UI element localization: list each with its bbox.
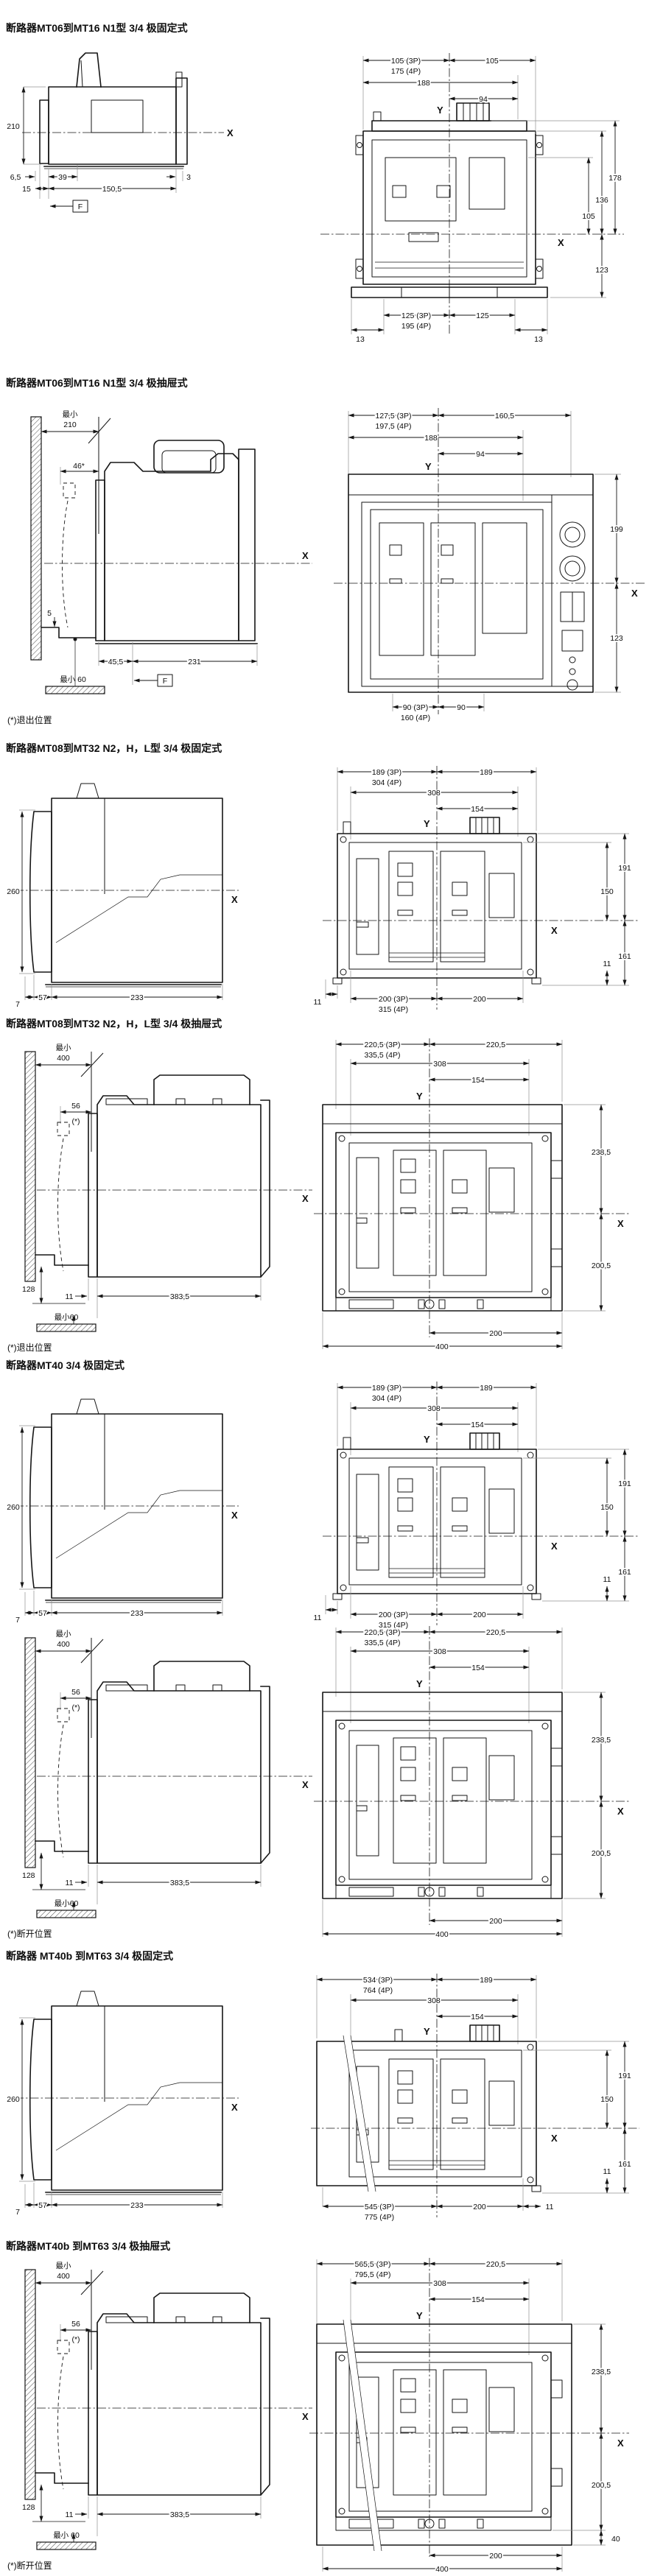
dimensions: 210 6,5 39 3 15 150,5 F — [7, 87, 191, 212]
dim-label: 105 (3P) — [391, 57, 421, 66]
dim-label: 260 — [7, 1503, 20, 1512]
dim-label: 200,5 — [592, 2481, 611, 2490]
dim-label: 150,5 — [102, 185, 122, 194]
dim-label: (*) — [71, 2335, 80, 2344]
floor-hatch — [37, 1910, 96, 1918]
dim-label: 7 — [15, 2208, 20, 2217]
dim-label: 383,5 — [170, 1292, 189, 1301]
section-title: 断路器MT40b 到MT63 3/4 极抽屉式 — [6, 2239, 170, 2253]
section-title: 断路器MT08到MT32 N2，H，L型 3/4 极抽屉式 — [6, 1016, 222, 1031]
dimensions-right: 191 150 161 11 — [523, 834, 631, 985]
dim-label: 565,5 (3P) — [354, 2260, 390, 2269]
dim-label: 11 — [66, 1292, 74, 1301]
dim-label: 308 — [427, 789, 441, 798]
door-plane — [88, 417, 110, 534]
dim-label: 161 — [618, 2160, 631, 2169]
front-view-drawing: Y X 105 (3P) 175 (4P) 105 188 94 178 136… — [298, 41, 652, 365]
dim-label: 154 — [471, 2013, 484, 2021]
dim-label: 188 — [417, 79, 430, 88]
dim-label: 200 — [489, 2552, 502, 2561]
dimensions-top: 最小 400 — [35, 1044, 91, 1065]
dim-label: 210 — [63, 420, 77, 429]
dim-label: 5 — [47, 609, 52, 618]
wall-hatch — [25, 1638, 35, 1868]
dimensions-top: 最小 210 — [41, 410, 99, 432]
dimensions-right: 191 150 161 11 — [523, 1449, 631, 1601]
front-view-drawing: 565,5 (3P) 795,5 (4P) 220,5 308 154 Y X … — [308, 2248, 647, 2575]
dim-label: 最小60 — [55, 1313, 79, 1322]
dim-label: 200 — [489, 1329, 502, 1338]
dim-label: (*) — [71, 1703, 80, 1712]
position-note: (*)断开位置 — [7, 1928, 52, 1939]
dim-label: 最小 — [56, 1630, 71, 1639]
section-title: 断路器MT06到MT16 N1型 3/4 极抽屉式 — [6, 376, 188, 390]
dim-label: 200,5 — [592, 1849, 611, 1858]
dim-label: 11 — [603, 960, 611, 968]
breaker-side-outline — [40, 53, 187, 169]
dim-label: 200 — [473, 995, 486, 1004]
axis-x-label: X — [617, 1806, 624, 1817]
dim-label: 400 — [57, 2272, 70, 2281]
dim-label: 56 — [71, 1102, 80, 1111]
dim-label: 46* — [73, 462, 85, 471]
dim-label: 308 — [433, 1060, 446, 1069]
dim-label: 90 — [457, 703, 466, 712]
front-view-drawing: 189 (3P) 304 (4P) 189 308 154 Y X 191 15… — [308, 1371, 654, 1633]
dim-label: 400 — [57, 1640, 70, 1649]
dim-label: 105 — [582, 212, 595, 221]
cradle-front-outline — [317, 2320, 572, 2551]
dim-label: 383,5 — [170, 1879, 189, 1887]
floor-hatch — [46, 686, 105, 694]
axis-x-label: X — [551, 925, 558, 936]
dim-label: 127,5 (3P) — [375, 412, 411, 420]
dim-label: 154 — [471, 805, 484, 814]
dim-label: 220,5 — [486, 1041, 505, 1049]
dim-label: 188 — [424, 434, 438, 443]
breaker-side-outline — [88, 2293, 270, 2495]
dim-label: 545 (3P) — [365, 2203, 394, 2211]
dim-label: 105 — [485, 57, 499, 66]
floor-and-bottom: 5 最小 60 45,5 231 F (*)退出位置 — [7, 609, 257, 725]
breaker-front-outline — [317, 2025, 541, 2192]
drawn-out-position — [57, 1122, 69, 1271]
dim-label: 128 — [22, 1871, 35, 1880]
side-view-drawing: 最小 400 56 (*) X 128 最小60 11 383,5 (*)退出位… — [3, 1034, 327, 1354]
dim-label: 6,5 — [10, 173, 21, 182]
position-note: (*)退出位置 — [7, 1342, 52, 1353]
wall-hatch — [31, 417, 41, 660]
dim-label: 260 — [7, 2095, 20, 2104]
section-title: 断路器MT40 3/4 极固定式 — [6, 1358, 124, 1373]
centerline-x: X — [37, 1190, 312, 1204]
dim-label: 128 — [22, 2503, 35, 2512]
centerlines: Y X — [323, 766, 639, 1010]
dim-label: 233 — [130, 1609, 144, 1618]
side-view-drawing: 最小 400 56 (*) X 128 最小 60 11 383,5 (*)断开… — [3, 2252, 327, 2572]
wall-hatch — [25, 2270, 35, 2499]
breaker-side-outline — [30, 784, 222, 987]
dim-label: 195 (4P) — [401, 322, 431, 331]
dim-label: 238,5 — [592, 1736, 611, 1745]
dimensions-top: 220,5 (3P) 335,5 (4P) 220,5 308 154 — [336, 1040, 562, 1136]
dimensions-right: 191 150 161 11 — [523, 2041, 631, 2193]
dim-label: 200 (3P) — [379, 995, 408, 1004]
break-line-gap — [343, 2035, 376, 2192]
floor-and-bottom: 128 最小 60 11 383,5 (*)断开位置 — [7, 2473, 261, 2571]
dim-label: 136 — [595, 196, 608, 205]
cradle-front-outline — [323, 1105, 562, 1311]
dimensions-top: 127,5 (3P) 197,5 (4P) 160,5 188 94 — [348, 411, 571, 501]
dim-label: 210 — [7, 122, 20, 131]
dim-label: 128 — [22, 1285, 35, 1294]
dim-label: 最小 60 — [53, 2531, 80, 2540]
side-view-drawing: 最小 400 56 (*) X 128 最小60 11 383,5 (*)断开位… — [3, 1620, 327, 1940]
dim-label: 308 — [427, 1996, 441, 2005]
dim-label: 260 — [7, 887, 20, 896]
dim-label: 150 — [600, 887, 614, 896]
axis-x-label: X — [231, 1510, 238, 1521]
dim-label: 94 — [479, 95, 488, 104]
dimensions-bottom: 200 400 — [323, 2547, 562, 2574]
centerline-x: X — [37, 2408, 312, 2422]
dim-label: 231 — [188, 658, 201, 666]
dimensions-top: 220,5 (3P) 335,5 (4P) 220,5 308 154 — [336, 1627, 562, 1723]
axis-x-label: X — [558, 237, 564, 248]
floor-and-bottom: 128 最小60 11 383,5 (*)断开位置 — [7, 1841, 261, 1939]
dim-label: 178 — [608, 174, 622, 183]
dim-label: 94 — [476, 450, 485, 459]
dimensions-bottom: 545 (3P) 775 (4P) 200 11 — [323, 2178, 554, 2222]
dimensions-right: 238,5 200,5 — [564, 1692, 611, 1898]
dim-label: 11 — [603, 1575, 611, 1584]
dim-label: 400 — [435, 1930, 449, 1939]
dim-label: 189 — [480, 768, 493, 777]
dim-label: 315 (4P) — [379, 1005, 408, 1014]
axis-y-label: Y — [437, 105, 443, 116]
dim-label: 40 — [611, 2535, 620, 2544]
dim-label: 56 — [71, 1688, 80, 1697]
dim-label: 13 — [534, 335, 543, 344]
drawn-out-position — [57, 2340, 69, 2489]
dim-label: 191 — [618, 2072, 631, 2080]
dimensions-bottom: 200 400 — [323, 1312, 562, 1351]
front-view-drawing: 127,5 (3P) 197,5 (4P) 160,5 188 94 Y X 1… — [328, 398, 652, 729]
dimensions-right: 238,5 200,5 — [564, 1105, 611, 1311]
dim-label: 最小 — [56, 1044, 71, 1052]
dim-label: 233 — [130, 993, 144, 1002]
dim-label: 57 — [38, 2201, 47, 2210]
breaker-side-outline — [88, 1075, 270, 1277]
dim-label: 56 — [71, 2320, 80, 2329]
axis-x-label: X — [302, 550, 309, 561]
dim-label: 90 (3P) — [403, 703, 428, 712]
breaker-side-outline — [88, 1661, 270, 1863]
position-note: (*)退出位置 — [7, 714, 52, 725]
axis-x-label: X — [617, 2438, 624, 2449]
side-view-drawing: 最小 210 46* X 5 最小 60 45,5 231 F (*)退出位置 — [3, 398, 327, 733]
dim-label: 191 — [618, 864, 631, 873]
front-view-drawing: 220,5 (3P) 335,5 (4P) 220,5 308 154 Y X … — [308, 1028, 647, 1356]
dim-label: 189 — [480, 1384, 493, 1393]
dim-label: 154 — [471, 2295, 485, 2304]
dim-label: 199 — [610, 525, 623, 534]
axis-y-label: Y — [424, 2026, 430, 2037]
dim-label: 238,5 — [592, 2368, 611, 2376]
dim-label: 304 (4P) — [372, 1394, 401, 1403]
side-view-drawing: X 210 6,5 39 3 15 150,5 F — [3, 43, 246, 216]
dim-label: 161 — [618, 952, 631, 961]
centerline-x: X — [44, 550, 312, 563]
dim-label: 11 — [546, 2203, 554, 2211]
centerlines: Y X — [323, 1382, 639, 1625]
side-view-drawing: X 260 7 57 233 — [3, 1379, 246, 1625]
dim-label: 57 — [38, 993, 47, 1002]
dim-label: 57 — [38, 1609, 47, 1618]
centerlines: Y X — [320, 53, 624, 336]
dim-label: 最小 60 — [60, 675, 86, 684]
dim-label: 154 — [471, 1664, 485, 1672]
dimensions: 260 7 57 233 — [7, 2018, 222, 2217]
dim-label: 150 — [600, 1503, 614, 1512]
breaker-side-outline — [30, 1399, 222, 1602]
dim-label: 11 — [314, 998, 322, 1007]
axis-y-label: Y — [424, 818, 430, 829]
dimensions-top: 最小 400 — [35, 1630, 91, 1651]
dim-label: 最小 — [63, 410, 78, 419]
breaker-side-outline — [30, 1991, 222, 2195]
dimensions: 105 (3P) 175 (4P) 105 188 94 178 136 105… — [351, 56, 622, 344]
front-view-drawing: 189 (3P) 304 (4P) 189 308 154 Y X 191 15… — [308, 756, 654, 1017]
dimensions-bottom: 200 400 — [323, 1900, 562, 1939]
dimensions-bottom: 11 200 (3P) 315 (4P) 200 — [314, 971, 523, 1014]
dim-label: 160 (4P) — [401, 714, 430, 722]
cradle-front-outline — [323, 1692, 562, 1898]
axis-y-label: Y — [425, 461, 432, 472]
dim-label: 200,5 — [592, 1261, 611, 1270]
floor-hatch — [37, 1324, 96, 1331]
dim-label: 220,5 (3P) — [364, 1041, 400, 1049]
dimensions: 260 7 57 233 — [7, 810, 222, 1009]
dimensions-right: 238,5 200,5 40 — [552, 2324, 620, 2545]
floor-and-bottom: 128 最小60 11 383,5 (*)退出位置 — [7, 1255, 261, 1353]
dim-label: 534 (3P) — [363, 1976, 393, 1985]
axis-x-label: X — [551, 1541, 558, 1552]
dim-label: 304 (4P) — [372, 778, 401, 787]
dim-label: 7 — [15, 1000, 20, 1009]
dim-label: 150 — [600, 2095, 614, 2104]
dim-label: 400 — [435, 1342, 449, 1351]
drawn-out-position — [57, 1708, 69, 1857]
dim-label: 220,5 (3P) — [364, 1628, 400, 1637]
dimensions-top: 最小 400 — [35, 2262, 91, 2283]
dim-label: 197,5 (4P) — [375, 422, 411, 431]
dim-label: 220,5 — [486, 2260, 505, 2269]
dim-label: 238,5 — [592, 1148, 611, 1157]
axis-y-label: Y — [416, 1678, 423, 1689]
dim-label: 125 — [476, 312, 489, 320]
dim-label: 123 — [610, 634, 623, 643]
dim-label: 191 — [618, 1479, 631, 1488]
axis-x-label: X — [631, 588, 638, 599]
dim-label: 11 — [66, 1879, 74, 1887]
dim-label: 189 (3P) — [372, 1384, 401, 1393]
dim-label: 125 (3P) — [401, 312, 431, 320]
axis-x-label: X — [231, 894, 238, 905]
axis-y-label: Y — [416, 2310, 423, 2321]
section-title: 断路器 MT40b 到MT63 3/4 极固定式 — [6, 1949, 173, 1963]
dim-label: 最小60 — [55, 1899, 79, 1908]
side-view-drawing: X 260 7 57 233 — [3, 1971, 246, 2217]
dim-label: 220,5 — [486, 1628, 505, 1637]
dim-label: 233 — [130, 2201, 144, 2210]
drawn-out-position — [63, 483, 76, 627]
axis-y-label: Y — [424, 1434, 430, 1445]
dim-label: 383,5 — [170, 2510, 189, 2519]
dim-label: 123 — [595, 266, 608, 275]
front-view-drawing: 534 (3P) 764 (4P) 189 308 154 Y X 191 15… — [308, 1963, 654, 2225]
dimension-drawings-page: 断路器MT06到MT16 N1型 3/4 极固定式 X 210 6,5 39 3… — [0, 0, 663, 2576]
dim-label: 最小 — [56, 2262, 71, 2270]
dimensions: 260 7 57 233 — [7, 1426, 222, 1625]
breaker-side-outline — [96, 440, 257, 644]
dim-label: 161 — [618, 1568, 631, 1577]
dim-label: 3 — [186, 173, 191, 182]
dim-label: 11 — [603, 2167, 611, 2176]
dim-label: 795,5 (4P) — [354, 2270, 390, 2279]
dim-label: 400 — [57, 1054, 70, 1063]
axis-x-label: X — [617, 1218, 624, 1229]
position-note: (*)断开位置 — [7, 2560, 52, 2571]
dim-label: 175 (4P) — [391, 67, 421, 76]
front-face-ref-label: F — [78, 203, 83, 211]
dim-label: 154 — [471, 1421, 484, 1429]
dim-door: 46* — [60, 462, 99, 485]
centerline-x: X — [37, 1776, 312, 1790]
dim-label: 308 — [433, 2279, 446, 2288]
dim-label: 200 — [473, 2203, 486, 2211]
dim-label: 189 — [480, 1976, 493, 1985]
dim-label: 775 (4P) — [365, 2213, 394, 2222]
dim-label: 308 — [433, 1647, 446, 1656]
dim-label: 335,5 (4P) — [364, 1639, 400, 1647]
dim-label: 39 — [58, 173, 67, 182]
front-view-drawing: 220,5 (3P) 335,5 (4P) 220,5 308 154 Y X … — [308, 1616, 647, 1943]
dim-label: 160,5 — [495, 412, 514, 420]
side-view-drawing: X 260 7 57 233 — [3, 763, 246, 1010]
dim-label: 200 — [489, 1917, 502, 1926]
dim-label: 308 — [427, 1404, 441, 1413]
axis-x-label: X — [231, 2102, 238, 2113]
axis-x-label: X — [551, 2133, 558, 2144]
dim-label: 13 — [356, 335, 365, 344]
section-title: 断路器MT06到MT16 N1型 3/4 极固定式 — [6, 21, 188, 35]
section-title: 断路器MT08到MT32 N2，H，L型 3/4 极固定式 — [6, 741, 222, 756]
dim-label: 335,5 (4P) — [364, 1051, 400, 1060]
wall-hatch — [25, 1052, 35, 1281]
dim-label: 11 — [66, 2510, 74, 2519]
dim-label: 15 — [22, 185, 31, 194]
dim-label: 764 (4P) — [363, 1986, 393, 1995]
dim-label: 45,5 — [108, 658, 124, 666]
axis-y-label: Y — [416, 1091, 423, 1102]
dim-label: (*) — [71, 1117, 80, 1126]
dim-label: 400 — [435, 2565, 449, 2574]
front-face-ref-label: F — [163, 677, 167, 686]
dim-label: 154 — [471, 1076, 485, 1085]
dim-label: 189 (3P) — [372, 768, 401, 777]
floor-hatch — [37, 2542, 96, 2549]
axis-x-label: X — [227, 127, 234, 138]
